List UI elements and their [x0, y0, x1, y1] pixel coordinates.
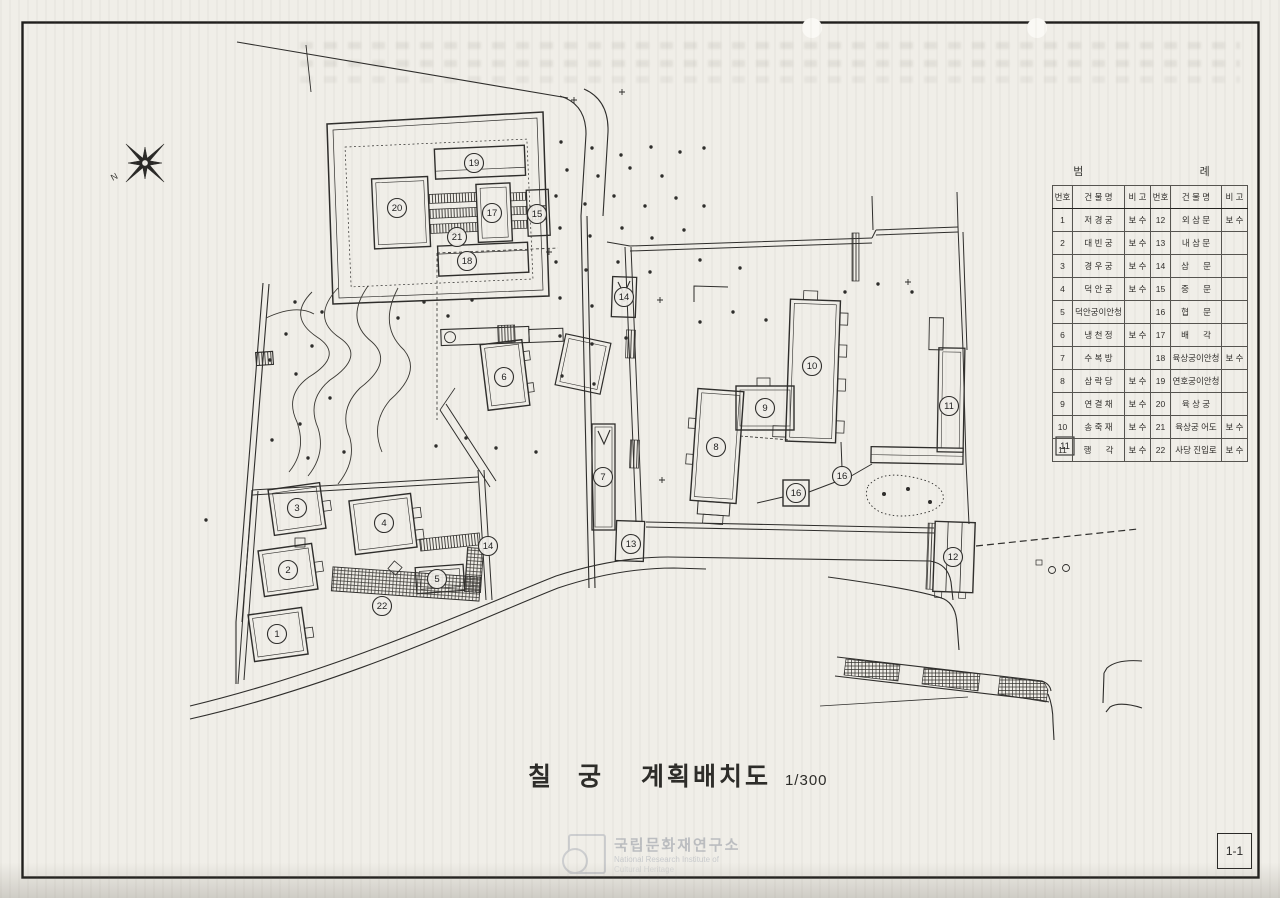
title-block: 칠 궁 계획배치도 1/300 — [528, 757, 828, 793]
tree-dot — [731, 310, 734, 313]
building-marker-10: 10 — [803, 357, 822, 376]
building-marker-17: 17 — [483, 204, 502, 223]
building-marker-22: 22 — [373, 597, 392, 616]
legend-cell-remark: 보 수 — [1125, 393, 1151, 416]
building-marker-6: 6 — [495, 368, 514, 387]
drawing-name: 계획배치도 — [641, 757, 771, 793]
legend-cell-remark: 보 수 — [1125, 416, 1151, 439]
legend-cell-name: 사당 진입로 — [1171, 439, 1222, 462]
legend-title: 범 례 — [1052, 163, 1245, 179]
tree-dot — [328, 396, 331, 399]
tree-dot — [702, 204, 705, 207]
punch-hole — [1027, 18, 1047, 38]
legend-header-remark: 비 고 — [1125, 186, 1151, 209]
legend-cell-name: 삼 문 — [1171, 255, 1222, 278]
page-label: 1-1 — [1217, 833, 1252, 869]
legend-cell-name: 수 복 방 — [1073, 347, 1125, 370]
tree-dot — [738, 266, 741, 269]
legend-cell-remark — [1222, 324, 1248, 347]
svg-text:9: 9 — [762, 403, 767, 414]
tree-dot — [583, 202, 586, 205]
legend-cell-no: 20 — [1151, 393, 1171, 416]
svg-text:13: 13 — [626, 539, 637, 550]
svg-text:11: 11 — [944, 401, 954, 412]
tree-dot — [612, 194, 615, 197]
tree-dot — [464, 436, 467, 439]
svg-text:14: 14 — [483, 541, 494, 552]
legend-cell-name: 연호궁이안청 — [1171, 370, 1222, 393]
tree-dot — [565, 168, 568, 171]
legend-cell-no: 5 — [1053, 301, 1073, 324]
svg-text:21: 21 — [452, 232, 463, 243]
tree-dot — [682, 228, 685, 231]
tree-dot — [560, 374, 563, 377]
legend-cell-remark: 보 수 — [1125, 209, 1151, 232]
svg-text:14: 14 — [619, 292, 630, 303]
tree-dot — [554, 260, 557, 263]
tree-dot — [619, 153, 622, 156]
legend-cell-name: 육 상 궁 — [1171, 393, 1222, 416]
legend-cell-name: 연 결 채 — [1073, 393, 1125, 416]
legend-cell-name: 대 빈 궁 — [1073, 232, 1125, 255]
tree-dot — [876, 282, 879, 285]
tree-dot — [650, 236, 653, 239]
legend-cell-remark — [1125, 301, 1151, 324]
building-marker-15: 15 — [528, 205, 547, 224]
tree-dot — [674, 196, 677, 199]
legend-cell-remark: 보 수 — [1125, 370, 1151, 393]
tree-dot — [284, 332, 287, 335]
tree-dot — [843, 290, 846, 293]
tree-dot — [204, 518, 207, 521]
svg-text:16: 16 — [837, 471, 848, 482]
tree-dot — [534, 450, 537, 453]
legend-cell-remark: 보 수 — [1125, 324, 1151, 347]
legend-cell-name: 내 삼 문 — [1171, 232, 1222, 255]
tree-dot — [558, 226, 561, 229]
tree-dot — [559, 140, 562, 143]
legend-cell-remark: 보 수 — [1125, 278, 1151, 301]
svg-text:7: 7 — [600, 472, 605, 483]
tree-dot — [310, 344, 313, 347]
watermark-org-en1: National Research Institute of — [614, 855, 740, 865]
svg-text:20: 20 — [392, 203, 403, 214]
legend-cell-no: 18 — [1151, 347, 1171, 370]
entry-path-22 — [331, 567, 480, 601]
access-road — [835, 657, 1142, 740]
tree-dot — [558, 296, 561, 299]
svg-text:10: 10 — [807, 361, 818, 372]
legend-cell-no: 14 — [1151, 255, 1171, 278]
stream-contours — [266, 286, 410, 484]
building-marker-19: 19 — [465, 154, 484, 173]
tree-dot — [620, 226, 623, 229]
tree-dot — [320, 310, 323, 313]
site-boundaries — [190, 42, 968, 719]
cross-mark — [619, 89, 625, 95]
legend-cell-remark: 보 수 — [1125, 232, 1151, 255]
tree-dot — [590, 304, 593, 307]
planting-blob — [867, 475, 944, 516]
building-18 — [438, 242, 529, 276]
legend-cell-remark — [1222, 370, 1248, 393]
legend-cell-name: 경 우 궁 — [1073, 255, 1125, 278]
svg-text:16: 16 — [791, 488, 802, 499]
legend-cell-name: 배 각 — [1171, 324, 1222, 347]
legend-cell-no: 7 — [1053, 347, 1073, 370]
svg-text:15: 15 — [532, 209, 543, 220]
watermark-org-en2: Cultural Heritage — [614, 865, 740, 875]
legend-header-no: 번호 — [1151, 186, 1171, 209]
legend-cell-remark: 보 수 — [1125, 439, 1151, 462]
tree-dot — [584, 268, 587, 271]
building-marker-4: 4 — [375, 514, 394, 533]
legend-cell-no: 2 — [1053, 232, 1073, 255]
north-letter: N — [109, 171, 119, 183]
drawing-sheet: N — [0, 0, 1280, 898]
tree-dot — [558, 334, 561, 337]
svg-text:6: 6 — [501, 372, 506, 383]
building-marker-8: 8 — [707, 438, 726, 457]
legend-header-remark: 비 고 — [1222, 186, 1248, 209]
svg-text:3: 3 — [294, 503, 299, 514]
tree-dot — [470, 298, 473, 301]
tree-dot — [588, 234, 591, 237]
tree-dot — [396, 316, 399, 319]
tree-dot — [698, 258, 701, 261]
upper-enclosure — [327, 112, 552, 304]
tree-dot — [590, 146, 593, 149]
tree-dot — [494, 446, 497, 449]
svg-text:1: 1 — [274, 629, 279, 640]
watermark: 국립문화재연구소 National Research Institute of … — [568, 834, 740, 875]
tree-dot — [434, 444, 437, 447]
tree-dot — [624, 336, 627, 339]
tree-dot — [649, 145, 652, 148]
building-marker-16: 16 — [833, 467, 852, 486]
legend-cell-name: 덕 안 궁 — [1073, 278, 1125, 301]
cross-mark — [657, 297, 663, 303]
legend-cell-name: 저 경 궁 — [1073, 209, 1125, 232]
legend-cell-no: 17 — [1151, 324, 1171, 347]
svg-text:8: 8 — [713, 442, 718, 453]
tree-dot — [910, 290, 913, 293]
legend-cell-remark — [1222, 393, 1248, 416]
legend-cell-remark — [1222, 255, 1248, 278]
legend-cell-name: 육상궁 어도 — [1171, 416, 1222, 439]
tree-dot — [698, 320, 701, 323]
building-marker-21: 21 — [448, 228, 467, 247]
legend-header-name: 건 물 명 — [1171, 186, 1222, 209]
legend-cell-name: 중 문 — [1171, 278, 1222, 301]
legend-cell-no: 21 — [1151, 416, 1171, 439]
site-name: 칠 궁 — [528, 757, 611, 793]
legend-cell-no: 13 — [1151, 232, 1171, 255]
boundary-tick-line — [976, 529, 1138, 546]
legend-header-name: 건 물 명 — [1073, 186, 1125, 209]
cross-mark — [905, 279, 911, 285]
building-marker-11: 11 — [940, 397, 959, 416]
svg-text:12: 12 — [948, 552, 959, 563]
legend-cell-no: 6 — [1053, 324, 1073, 347]
tree-dot — [422, 300, 425, 303]
legend-cell-no: 22 — [1151, 439, 1171, 462]
building-marker-12: 12 — [944, 548, 963, 567]
building-marker-3: 3 — [288, 499, 307, 518]
legend-cell-remark: 보 수 — [1222, 347, 1248, 370]
legend-table: 번호 건 물 명 비 고 번호 건 물 명 비 고 1저 경 궁보 수12외 삼… — [1052, 185, 1248, 462]
tree-dot — [648, 270, 651, 273]
building-marker-14: 14 — [615, 288, 634, 307]
building-marker-16: 16 — [787, 484, 806, 503]
tree-dot — [643, 204, 646, 207]
legend-cell-no: 15 — [1151, 278, 1171, 301]
legend-cell-no: 1 — [1053, 209, 1073, 232]
tree-dot — [660, 174, 663, 177]
building-marker-7: 7 — [594, 468, 613, 487]
legend-cell-no: 16 — [1151, 301, 1171, 324]
building-marker-9: 9 — [756, 399, 775, 418]
tree-dot — [764, 318, 767, 321]
legend-cell-name: 냉 천 정 — [1073, 324, 1125, 347]
tree-dot-layer — [204, 89, 913, 522]
drawing-scale: 1/300 — [785, 772, 828, 789]
tree-dot — [596, 174, 599, 177]
tree-dot — [590, 342, 593, 345]
legend-cell-remark — [1222, 232, 1248, 255]
building-marker-14: 14 — [479, 537, 498, 556]
legend-cell-no: 11 — [1053, 439, 1073, 462]
building-marker-20: 20 — [388, 199, 407, 218]
svg-text:4: 4 — [381, 518, 386, 529]
tree-dot — [293, 300, 296, 303]
svg-text:5: 5 — [434, 574, 439, 585]
svg-text:2: 2 — [285, 565, 290, 576]
legend-cell-name: 협 문 — [1171, 301, 1222, 324]
royal-path-21 — [428, 192, 476, 203]
legend-cell-remark: 보 수 — [1222, 439, 1248, 462]
tree-dot — [342, 450, 345, 453]
building-marker-13: 13 — [622, 535, 641, 554]
building-marker-1: 1 — [268, 625, 287, 644]
legend-cell-name: 외 삼 문 — [1171, 209, 1222, 232]
tree-dot — [554, 194, 557, 197]
legend-cell-no: 8 — [1053, 370, 1073, 393]
legend-header-no: 번호 — [1053, 186, 1073, 209]
tree-dot — [268, 358, 271, 361]
legend-cell-remark — [1125, 347, 1151, 370]
legend-cell-name: 덕안궁이안청 — [1073, 301, 1125, 324]
legend-cell-no: 19 — [1151, 370, 1171, 393]
tree-dot — [298, 422, 301, 425]
svg-text:18: 18 — [462, 256, 473, 267]
cross-mark — [659, 477, 665, 483]
naengcheonjeong-group — [437, 248, 611, 487]
tree-dot — [702, 146, 705, 149]
building-marker-2: 2 — [279, 561, 298, 580]
tree-dot — [306, 456, 309, 459]
legend-cell-no: 12 — [1151, 209, 1171, 232]
tree-dot — [592, 382, 595, 385]
tree-dot — [616, 260, 619, 263]
building-marker-18: 18 — [458, 252, 477, 271]
legend: 범 례 번호 건 물 명 비 고 번호 건 물 명 비 고 1저 경 궁보 수1… — [1052, 163, 1245, 462]
legend-cell-no: 9 — [1053, 393, 1073, 416]
legend-cell-name: 삼 락 당 — [1073, 370, 1125, 393]
tree-dot — [628, 166, 631, 169]
building-marker-5: 5 — [428, 570, 447, 589]
legend-cell-remark — [1222, 278, 1248, 301]
tree-dot — [270, 438, 273, 441]
legend-cell-remark — [1222, 301, 1248, 324]
legend-cell-no: 10 — [1053, 416, 1073, 439]
institute-logo-icon — [568, 834, 606, 874]
svg-text:22: 22 — [377, 601, 388, 612]
legend-cell-remark: 보 수 — [1222, 416, 1248, 439]
svg-text:19: 19 — [469, 158, 480, 169]
tree-dot — [446, 314, 449, 317]
tree-dot — [294, 372, 297, 375]
svg-text:17: 17 — [487, 208, 498, 219]
watermark-org-kr: 국립문화재연구소 — [614, 834, 740, 855]
legend-cell-remark: 보 수 — [1125, 255, 1151, 278]
legend-cell-no: 3 — [1053, 255, 1073, 278]
north-compass-icon: N — [107, 125, 183, 201]
legend-cell-remark: 보 수 — [1222, 209, 1248, 232]
punch-hole — [802, 18, 822, 38]
legend-cell-name: 육상궁이안청 — [1171, 347, 1222, 370]
tree-dot — [678, 150, 681, 153]
legend-cell-name: 송 죽 재 — [1073, 416, 1125, 439]
legend-cell-no: 4 — [1053, 278, 1073, 301]
legend-cell-name: 행 각 — [1073, 439, 1125, 462]
